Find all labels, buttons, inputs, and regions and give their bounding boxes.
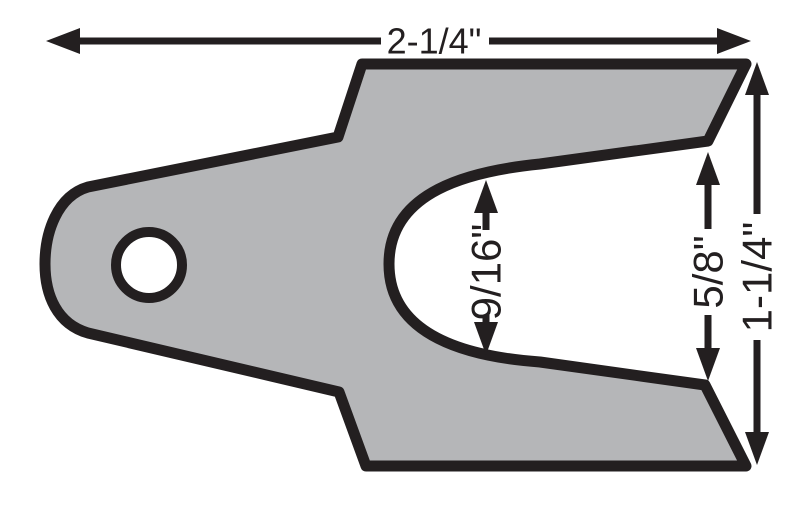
arrowhead-down-icon [696,348,720,381]
arrowhead-left-icon [46,28,80,54]
dim-label-slot-opening: 5/8" [685,235,732,308]
dim-slot-width: 9/16" [463,180,510,355]
mounting-hole [116,232,182,298]
dim-label-slot-width: 9/16" [463,224,510,321]
arrowhead-right-icon [717,28,751,54]
dim-overall-height: 1-1/4" [734,62,781,465]
arrowhead-up-icon [696,152,720,185]
diagram-canvas: 2-1/4" 9/16" 5/8" 1-1/4" [0,0,800,505]
dim-label-overall-height: 1-1/4" [734,222,781,333]
arrowhead-up-icon [474,180,498,213]
dim-label-overall-width: 2-1/4" [387,21,482,62]
dim-overall-width: 2-1/4" [46,21,751,62]
dim-slot-opening: 5/8" [685,152,732,381]
shim-technical-drawing: 2-1/4" 9/16" 5/8" 1-1/4" [0,0,800,505]
